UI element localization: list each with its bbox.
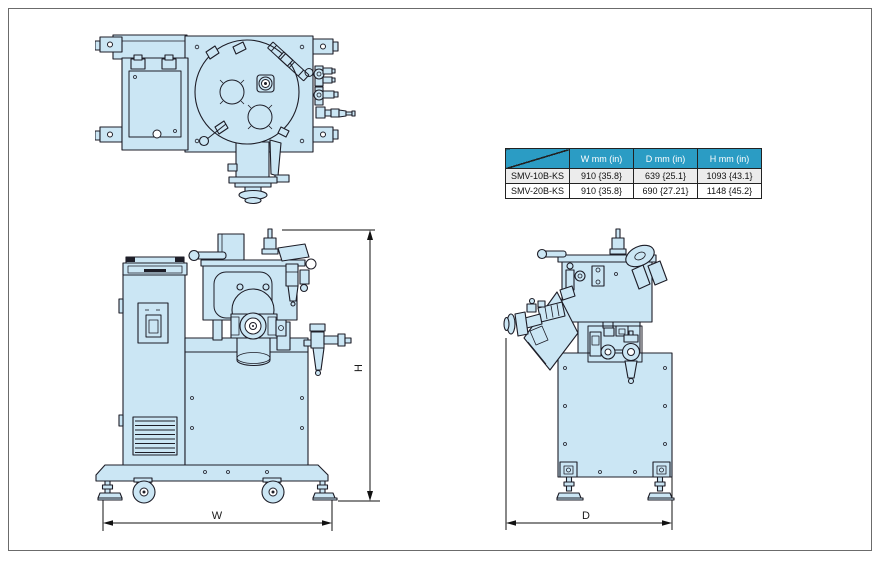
circuit-breaker-box (138, 303, 168, 343)
spec-table-header-row: W mm (in) D mm (in) H mm (in) (506, 149, 762, 169)
col-header-d: D mm (in) (634, 149, 698, 169)
col-header-h: H mm (in) (698, 149, 762, 169)
front-view-drawing: H W (90, 228, 390, 535)
machine-housing-side (558, 317, 672, 477)
value-w: 910 {35.8} (570, 184, 634, 199)
value-h: 1093 {43.1} (698, 169, 762, 184)
table-row: SMV-10B-KS 910 {35.8} 639 {25.1} 1093 {4… (506, 169, 762, 184)
spec-table: W mm (in) D mm (in) H mm (in) SMV-10B-KS… (505, 148, 762, 199)
mixer-head (189, 229, 316, 339)
top-view-drawing (95, 27, 357, 207)
discharge-chute (228, 140, 289, 204)
value-h: 1148 {45.2} (698, 184, 762, 199)
spec-table-corner-cell (506, 149, 570, 169)
dimension-width: W (103, 498, 332, 531)
top-plate (113, 35, 187, 59)
table-row: SMV-20B-KS 910 {35.8} 690 {27.21} 1148 {… (506, 184, 762, 199)
col-header-w: W mm (in) (570, 149, 634, 169)
vent-grille (133, 417, 177, 455)
access-door (122, 55, 188, 150)
value-d: 639 {25.1} (634, 169, 698, 184)
model-name: SMV-10B-KS (506, 169, 570, 184)
model-name: SMV-20B-KS (506, 184, 570, 199)
depth-dimension-label: D (582, 510, 590, 522)
side-valve-fittings (314, 66, 355, 118)
value-d: 690 {27.21} (634, 184, 698, 199)
value-w: 910 {35.8} (570, 169, 634, 184)
center-hub (257, 75, 274, 92)
width-dimension-label: W (212, 510, 223, 522)
air-filter-regulator (304, 324, 351, 376)
side-view-drawing: D (480, 228, 692, 535)
leveling-feet-side (557, 477, 674, 500)
base-frame (96, 465, 328, 481)
caster-wheels (133, 478, 284, 503)
height-dimension-label: H (353, 364, 365, 372)
